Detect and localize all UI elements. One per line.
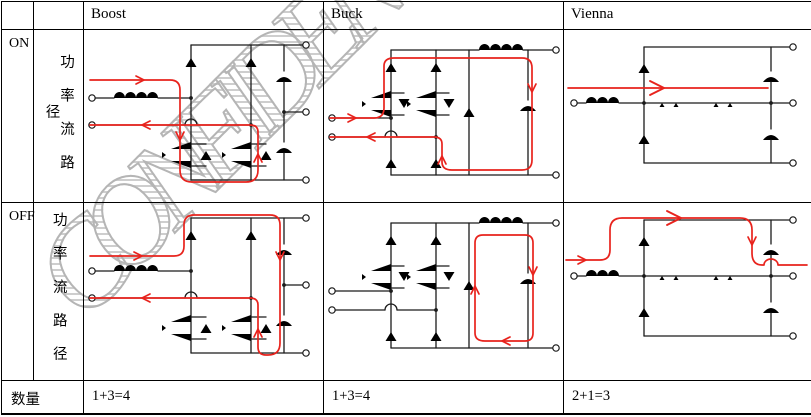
vienna-on-circuit-diagram <box>564 30 810 202</box>
boost-on-power-flow-path <box>90 76 262 182</box>
buck-off-cell <box>324 203 564 381</box>
buck-off-circuit-diagram <box>324 203 563 375</box>
metric-cell-on: 功率流路径 <box>34 30 84 203</box>
header-cell-empty-2 <box>34 2 84 30</box>
header-cell-vienna: Vienna <box>564 2 811 30</box>
row-label-on: ON <box>2 30 34 203</box>
row-label-off: OFF <box>2 203 34 381</box>
vienna-off-cell <box>564 203 811 381</box>
boost-off-circuit-diagram <box>84 203 323 375</box>
quantity-value-boost: 1+3=4 <box>84 381 324 413</box>
buck-on-circuit-diagram <box>324 30 563 202</box>
quantity-value-buck: 1+3=4 <box>324 381 564 413</box>
header-cell-buck: Buck <box>324 2 564 30</box>
vienna-off-circuit-diagram <box>564 203 810 375</box>
header-cell-boost: Boost <box>84 2 324 30</box>
comparison-table: Boost Buck Vienna ON 功率流路径 <box>1 1 811 415</box>
boost-on-cell <box>84 30 324 203</box>
boost-off-cell <box>84 203 324 381</box>
quantity-row-label: 数量 <box>2 381 84 413</box>
buck-on-cell <box>324 30 564 203</box>
vienna-on-power-flow-path <box>568 81 768 95</box>
document-page: CONFIDENTIAL Boost Buck <box>0 0 811 417</box>
buck-off-power-flow-path <box>471 235 537 345</box>
vienna-on-cell <box>564 30 811 203</box>
metric-cell-off: 功率流路径 <box>34 203 84 381</box>
power-flow-path-label: 功率流路径 <box>51 203 66 380</box>
header-cell-empty-1 <box>2 2 34 30</box>
quantity-value-vienna: 2+1=3 <box>564 381 811 413</box>
power-flow-path-label: 功率流路径 <box>44 30 73 202</box>
boost-on-circuit-diagram <box>84 30 323 202</box>
